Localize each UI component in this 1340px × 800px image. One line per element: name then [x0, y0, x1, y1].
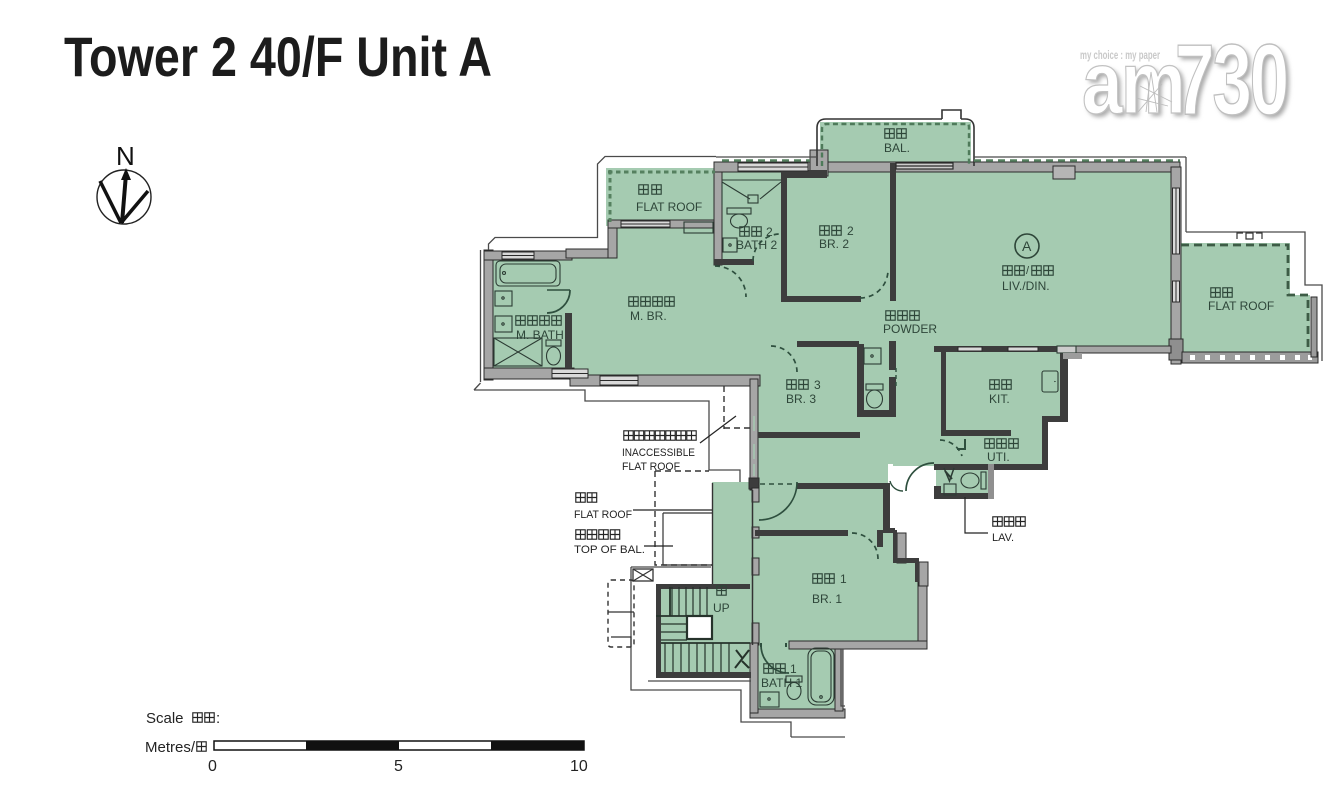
svg-text:my choice : my paper: my choice : my paper [1080, 48, 1160, 62]
svg-text:3: 3 [814, 378, 821, 392]
svg-text:BR. 3: BR. 3 [786, 392, 816, 406]
svg-text:FLAT ROOF: FLAT ROOF [636, 200, 702, 214]
svg-text:UTI.: UTI. [987, 450, 1010, 464]
svg-text:Metres/: Metres/ [145, 739, 196, 756]
svg-text:A: A [1022, 238, 1032, 254]
svg-text:5: 5 [394, 758, 403, 775]
svg-text:BATH 1: BATH 1 [761, 676, 802, 690]
svg-text:N: N [116, 141, 135, 171]
svg-text:BR. 1: BR. 1 [812, 592, 842, 606]
svg-text:LAV.: LAV. [992, 532, 1014, 544]
svg-text:LIV./DIN.: LIV./DIN. [1002, 279, 1050, 293]
svg-text:1: 1 [840, 572, 847, 586]
svg-text:FLAT ROOF: FLAT ROOF [622, 461, 680, 473]
svg-text:730: 730 [1175, 24, 1287, 136]
svg-text::: : [216, 710, 220, 727]
svg-text:UP: UP [713, 601, 730, 615]
svg-text:2: 2 [847, 224, 854, 238]
svg-text:FLAT ROOF: FLAT ROOF [574, 509, 632, 521]
svg-text:Scale: Scale [146, 710, 184, 727]
svg-text:POWDER: POWDER [883, 322, 937, 336]
svg-text:BR. 2: BR. 2 [819, 237, 849, 251]
svg-text:2: 2 [766, 225, 773, 239]
svg-text:M. BR.: M. BR. [630, 309, 667, 323]
svg-text:INACCESSIBLE: INACCESSIBLE [622, 447, 695, 459]
svg-text:TOP OF BAL.: TOP OF BAL. [574, 544, 645, 556]
svg-text:BAL.: BAL. [884, 141, 910, 155]
svg-text:BATH 2: BATH 2 [736, 238, 777, 252]
svg-text:0: 0 [208, 758, 217, 775]
svg-text:FLAT ROOF: FLAT ROOF [1208, 299, 1274, 313]
svg-text:Tower 2 40/F Unit A: Tower 2 40/F Unit A [64, 25, 492, 88]
svg-text:10: 10 [570, 758, 588, 775]
svg-text:KIT.: KIT. [989, 392, 1010, 406]
svg-text:1: 1 [790, 662, 797, 676]
svg-text:M. BATH: M. BATH [516, 328, 564, 342]
